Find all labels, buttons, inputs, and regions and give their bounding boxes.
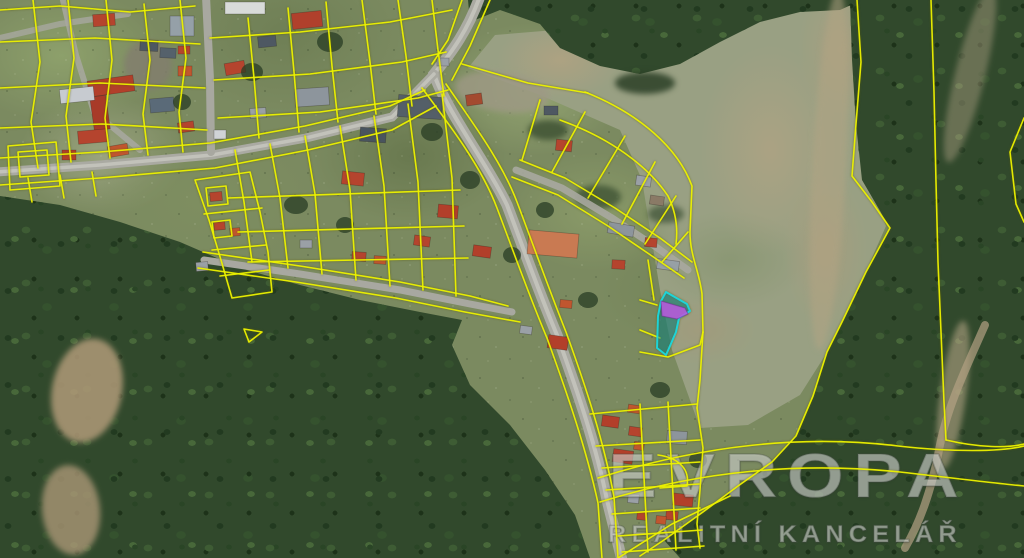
map-canvas[interactable]: EVROPA REALITNÍ KANCELÁŘ [0, 0, 1024, 558]
parcel-lines-layer [0, 0, 1024, 558]
highlighted-parcel[interactable] [657, 292, 690, 355]
